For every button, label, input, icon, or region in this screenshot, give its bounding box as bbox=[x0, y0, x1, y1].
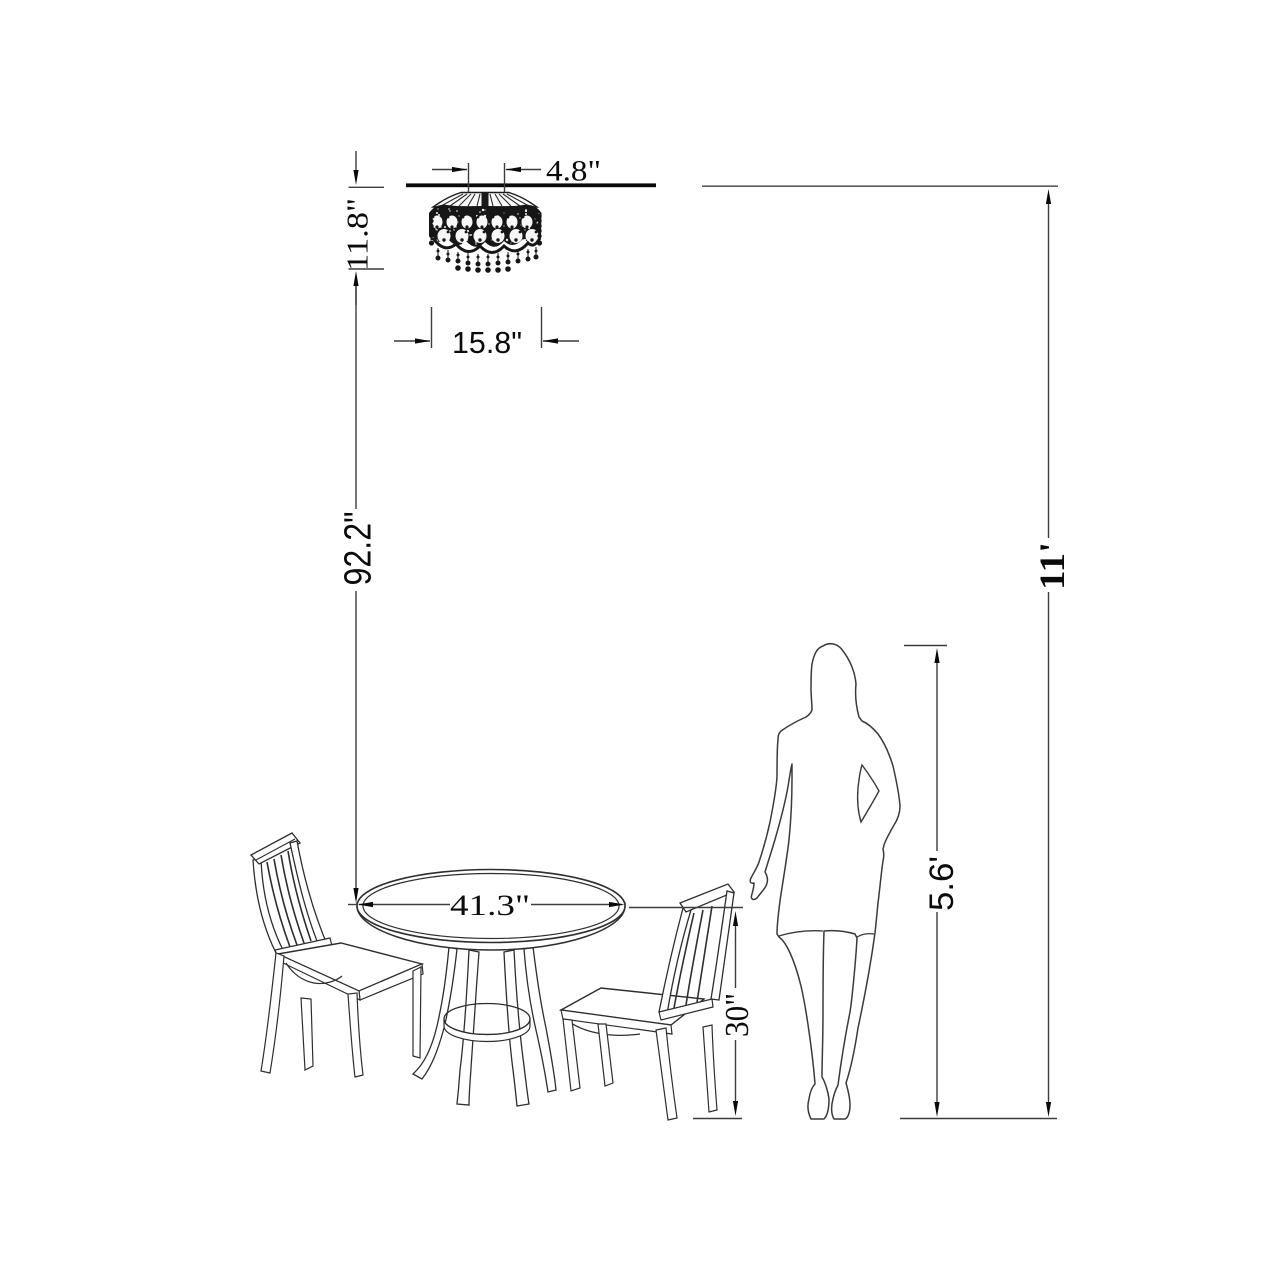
svg-text:11': 11' bbox=[1032, 542, 1072, 590]
svg-text:30": 30" bbox=[719, 993, 756, 1037]
svg-text:5.6': 5.6' bbox=[923, 856, 961, 911]
svg-text:11.8": 11.8" bbox=[340, 198, 375, 271]
svg-text:92.2": 92.2" bbox=[338, 512, 380, 586]
svg-text:4.8": 4.8" bbox=[546, 155, 601, 188]
svg-text:15.8": 15.8" bbox=[452, 325, 522, 360]
svg-text:41.3": 41.3" bbox=[450, 889, 530, 922]
